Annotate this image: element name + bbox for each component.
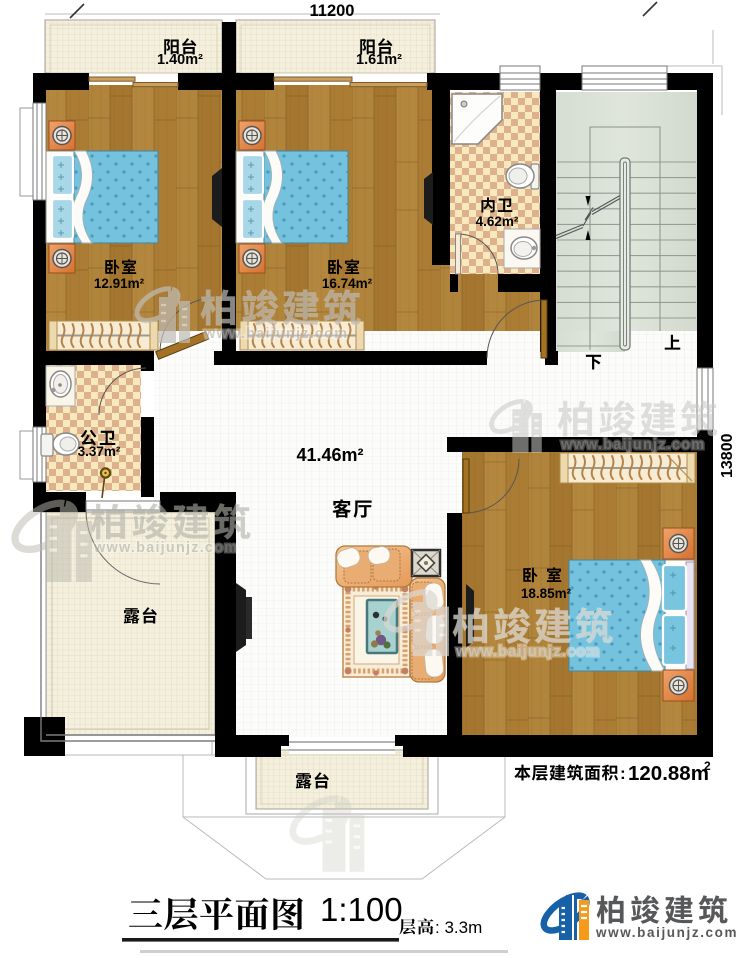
svg-text:3.37m²: 3.37m² (78, 444, 121, 459)
svg-text:www.baijunjz.com: www.baijunjz.com (595, 925, 738, 940)
svg-text:: 3.3m: : 3.3m (435, 918, 482, 937)
svg-text:4.62m²: 4.62m² (476, 214, 519, 229)
svg-text:www.baijunjz.com: www.baijunjz.com (560, 437, 705, 453)
svg-text::: : (620, 764, 626, 783)
svg-text:1.61m²: 1.61m² (356, 52, 402, 68)
svg-text:120.88m: 120.88m (628, 762, 709, 785)
svg-text:1:100: 1:100 (320, 891, 403, 928)
svg-text:11200: 11200 (310, 2, 355, 20)
svg-text:18.85m²: 18.85m² (521, 586, 572, 601)
svg-text:12.91m²: 12.91m² (94, 276, 145, 291)
svg-text:41.46m²: 41.46m² (296, 445, 363, 465)
svg-text:www.baijunjz.com: www.baijunjz.com (93, 540, 238, 556)
svg-text:16.74m²: 16.74m² (322, 276, 373, 291)
svg-text:2: 2 (704, 759, 711, 773)
svg-text:1.40m²: 1.40m² (157, 52, 203, 68)
svg-text:www.baijunjz.com: www.baijunjz.com (455, 644, 600, 660)
svg-text:www.baijunjz.com: www.baijunjz.com (203, 326, 348, 342)
svg-text:13800: 13800 (719, 433, 736, 478)
